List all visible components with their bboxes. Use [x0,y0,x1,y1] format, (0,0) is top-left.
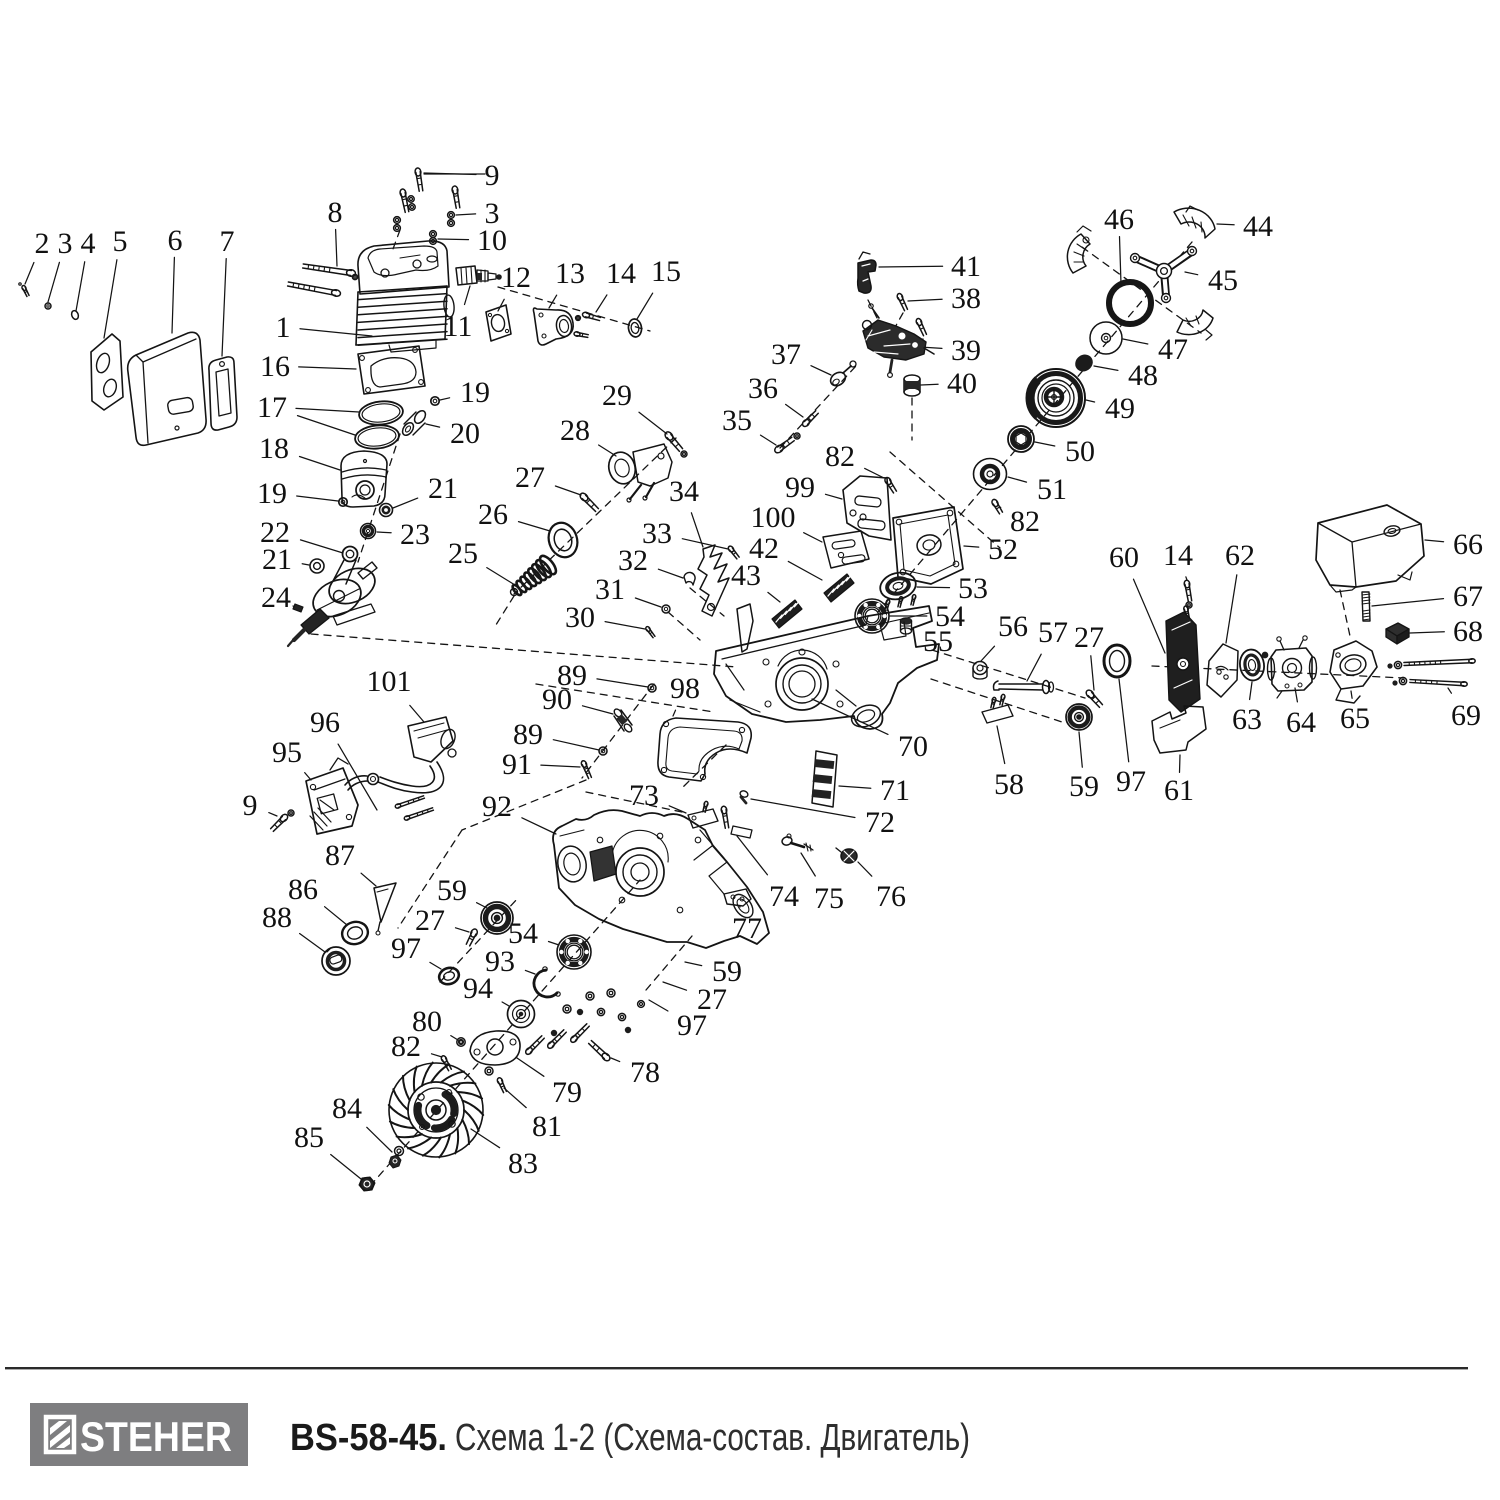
svg-text:85: 85 [294,1121,324,1154]
svg-text:69: 69 [1451,699,1481,732]
svg-text:19: 19 [460,376,490,409]
svg-text:97: 97 [391,932,421,965]
svg-text:13: 13 [555,257,585,290]
svg-text:9: 9 [485,159,500,192]
svg-text:3: 3 [58,227,73,260]
svg-text:40: 40 [947,367,977,400]
svg-text:1: 1 [276,311,291,344]
svg-text:11: 11 [444,310,473,343]
svg-text:99: 99 [785,471,815,504]
svg-text:23: 23 [400,518,430,551]
svg-text:50: 50 [1065,435,1095,468]
svg-text:82: 82 [391,1030,421,1063]
svg-text:37: 37 [771,338,801,371]
svg-text:21: 21 [428,472,458,505]
svg-text:2: 2 [35,227,50,260]
svg-text:STEHER: STEHER [80,1413,232,1460]
svg-text:45: 45 [1208,264,1238,297]
svg-text:62: 62 [1225,539,1255,572]
svg-text:59: 59 [1069,770,1099,803]
svg-text:25: 25 [448,537,478,570]
svg-text:31: 31 [595,573,625,606]
svg-text:51: 51 [1037,473,1067,506]
svg-text:81: 81 [532,1110,562,1143]
svg-text:21: 21 [262,543,292,576]
svg-text:57: 57 [1038,616,1068,649]
svg-text:94: 94 [463,972,493,1005]
svg-text:14: 14 [606,257,636,290]
svg-text:98: 98 [670,672,700,705]
svg-text:14: 14 [1163,539,1193,572]
svg-text:92: 92 [482,790,512,823]
svg-text:47: 47 [1158,333,1188,366]
svg-text:18: 18 [259,432,289,465]
svg-text:49: 49 [1105,392,1135,425]
svg-text:38: 38 [951,282,981,315]
svg-text:58: 58 [994,768,1024,801]
svg-text:87: 87 [325,839,355,872]
svg-text:63: 63 [1232,703,1262,736]
svg-text:56: 56 [998,610,1028,643]
svg-text:96: 96 [310,706,340,739]
svg-text:75: 75 [814,882,844,915]
svg-text:86: 86 [288,873,318,906]
svg-text:95: 95 [272,736,302,769]
svg-text:29: 29 [602,379,632,412]
svg-text:48: 48 [1128,359,1158,392]
svg-text:76: 76 [876,880,906,913]
svg-text:46: 46 [1104,203,1134,236]
svg-text:10: 10 [477,224,507,257]
svg-text:71: 71 [880,774,910,807]
svg-text:34: 34 [669,475,699,508]
svg-text:6: 6 [168,224,183,257]
svg-text:20: 20 [450,417,480,450]
svg-text:4: 4 [81,227,96,260]
svg-text:8: 8 [328,196,343,229]
svg-text:89: 89 [513,718,543,751]
svg-text:72: 72 [865,806,895,839]
svg-text:52: 52 [988,533,1018,566]
svg-text:9: 9 [243,789,258,822]
svg-text:101: 101 [367,665,412,698]
svg-text:79: 79 [552,1076,582,1109]
svg-text:88: 88 [262,901,292,934]
svg-text:39: 39 [951,334,981,367]
svg-text:65: 65 [1340,702,1370,735]
svg-text:67: 67 [1453,580,1483,613]
svg-text:97: 97 [677,1009,707,1042]
svg-text:44: 44 [1243,210,1273,243]
svg-text:64: 64 [1286,706,1316,739]
svg-text:70: 70 [898,730,928,763]
svg-text:100: 100 [751,501,796,534]
svg-text:74: 74 [769,880,799,913]
svg-text:90: 90 [542,683,572,716]
svg-text:27: 27 [515,461,545,494]
svg-text:78: 78 [630,1056,660,1089]
svg-text:83: 83 [508,1147,538,1180]
svg-text:36: 36 [748,372,778,405]
svg-text:35: 35 [722,404,752,437]
svg-text:61: 61 [1164,774,1194,807]
svg-text:BS-58-45.Схема 1-2 (Схема-сост: BS-58-45.Схема 1-2 (Схема-состав. Двигат… [290,1417,970,1459]
svg-text:5: 5 [113,225,128,258]
svg-text:59: 59 [437,874,467,907]
svg-text:82: 82 [825,440,855,473]
svg-text:16: 16 [260,350,290,383]
svg-text:73: 73 [629,779,659,812]
svg-text:97: 97 [1116,765,1146,798]
svg-text:7: 7 [220,225,235,258]
svg-text:41: 41 [951,250,981,283]
svg-text:24: 24 [261,581,291,614]
svg-text:30: 30 [565,601,595,634]
svg-text:17: 17 [257,391,287,424]
svg-text:28: 28 [560,414,590,447]
svg-text:84: 84 [332,1092,362,1125]
svg-text:15: 15 [651,255,681,288]
svg-text:43: 43 [731,559,761,592]
svg-text:27: 27 [1074,621,1104,654]
svg-text:68: 68 [1453,615,1483,648]
svg-text:91: 91 [502,748,532,781]
svg-text:19: 19 [257,477,287,510]
svg-text:26: 26 [478,498,508,531]
svg-text:66: 66 [1453,528,1483,561]
svg-text:60: 60 [1109,541,1139,574]
svg-text:12: 12 [501,261,531,294]
